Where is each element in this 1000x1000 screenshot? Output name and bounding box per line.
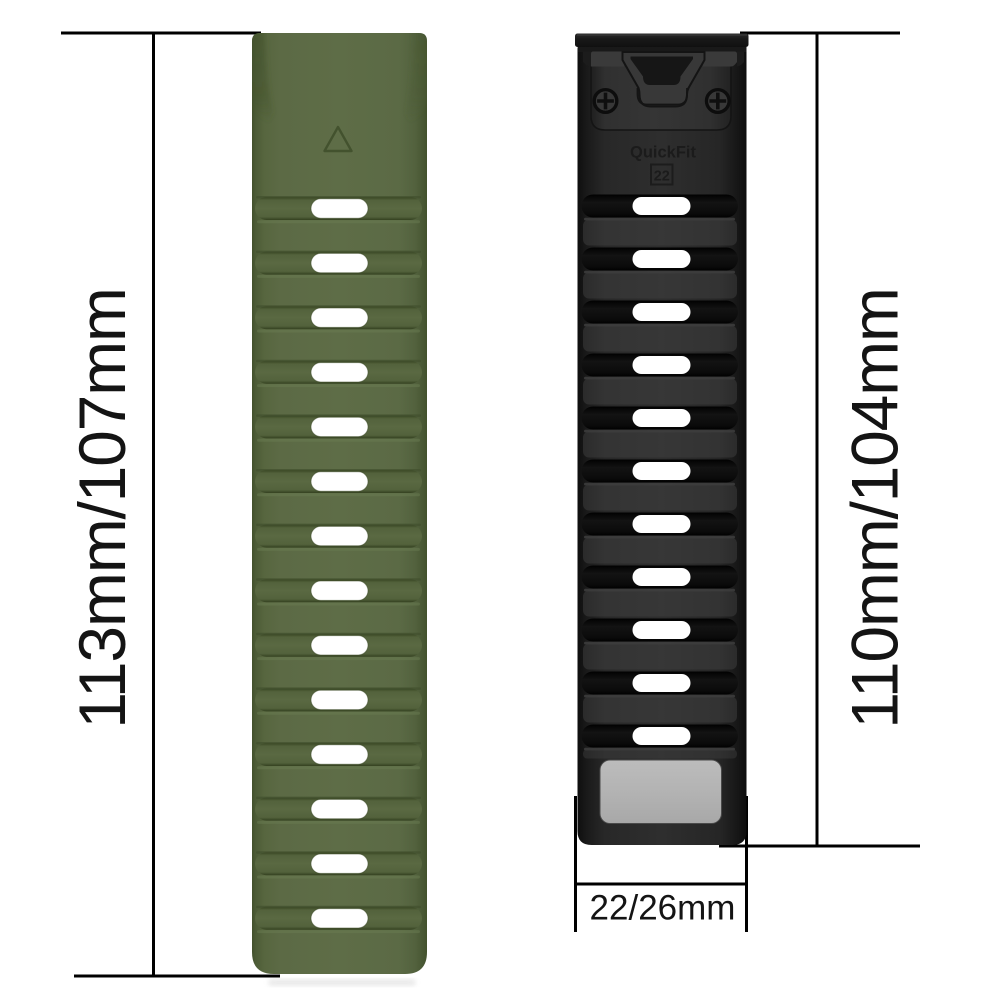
svg-text:QuickFit: QuickFit <box>630 144 697 162</box>
svg-text:22: 22 <box>654 169 670 185</box>
svg-text:113mm/107mm: 113mm/107mm <box>65 288 139 728</box>
svg-text:22/26mm: 22/26mm <box>590 889 736 928</box>
svg-text:110mm/104mm: 110mm/104mm <box>838 288 912 728</box>
